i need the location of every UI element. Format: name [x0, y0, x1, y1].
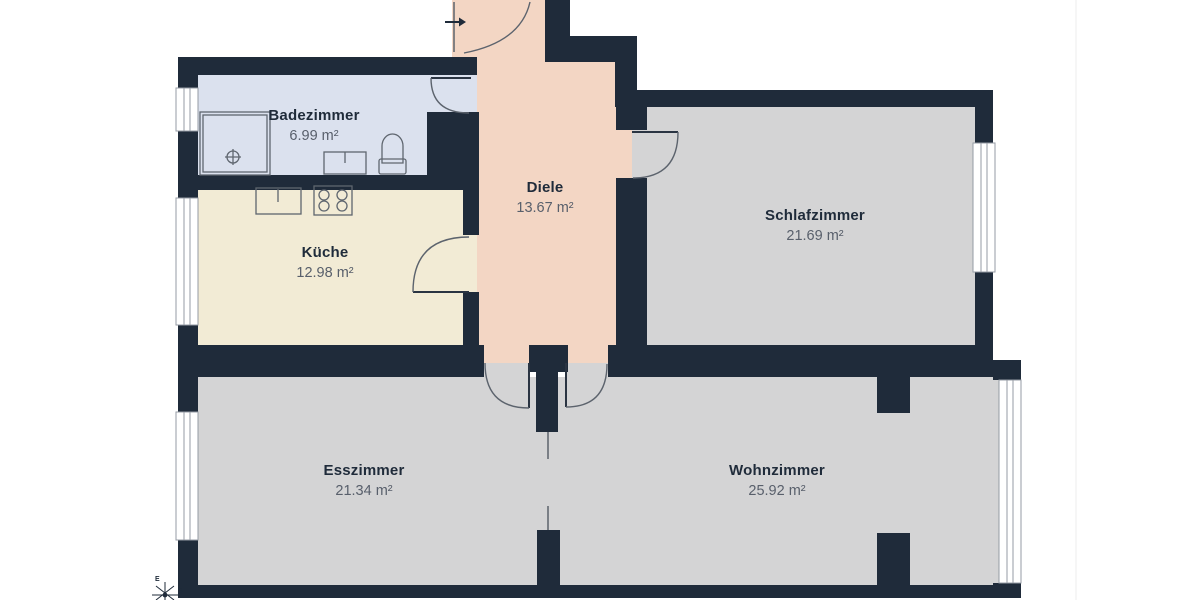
wall-bottom	[178, 585, 1021, 598]
floor-plan-drawing: E S	[0, 0, 1200, 600]
wall-schlafzimmer-bottom	[608, 345, 993, 377]
wall-diele-schlaf-upper	[616, 107, 647, 130]
wall-bad-diele	[427, 112, 479, 190]
wall-schlafzimmer-top	[637, 90, 993, 107]
floor-schlafzimmer	[632, 107, 975, 345]
floor-kueche	[198, 190, 479, 345]
wall-step-block-topright	[993, 360, 1021, 380]
wall-esszimmer-top	[198, 345, 484, 377]
wall-wohnzimmer-stub-top	[877, 377, 910, 413]
window-schlafzimmer	[973, 143, 995, 272]
wall-top	[178, 57, 477, 75]
wall-pillar-stem	[536, 372, 558, 432]
wall-step-v	[615, 62, 637, 107]
wall-block-bottomright	[993, 583, 1021, 598]
wall-wohnzimmer-stub-bottom	[877, 533, 910, 585]
compass-south-label: S	[178, 588, 183, 595]
wall-diele-schlaf-lower	[616, 178, 647, 345]
wall-kueche-diele-upper	[463, 188, 479, 235]
wall-entry-right	[545, 0, 570, 62]
wall-kueche-diele-lower	[463, 292, 479, 345]
wall-divider-block	[537, 530, 560, 587]
floor-plan: E S Badezimmer 6.99 m² Küche 12.98 m² Di…	[0, 0, 1200, 600]
compass-east-label: E	[155, 576, 160, 583]
window-kueche	[176, 198, 198, 325]
wall-step-h	[570, 36, 637, 62]
window-badezimmer	[176, 88, 198, 131]
wall-pillar	[529, 345, 568, 372]
window-wohnzimmer	[999, 380, 1021, 583]
window-esszimmer	[176, 412, 198, 540]
